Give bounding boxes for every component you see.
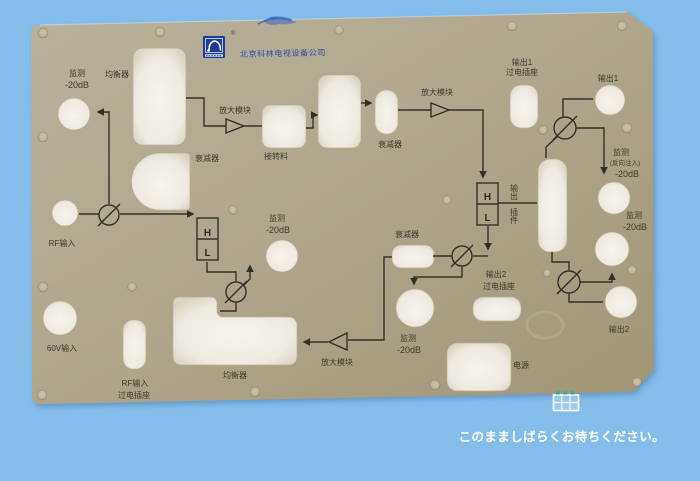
cutout-equalizer-top <box>133 48 186 145</box>
label-amp-module-bottom: 放大模块 <box>321 357 353 367</box>
label-rf-in: RF输入 <box>49 238 76 248</box>
cutout-rf-socket <box>123 320 146 369</box>
label-monitor-bottom-db: -20dB <box>397 345 421 355</box>
label-out1: 输出1 <box>598 73 619 83</box>
label-monitor-tl-db: -20dB <box>65 80 89 90</box>
cutout-rf-in <box>52 200 78 226</box>
label-power: 电源 <box>513 360 529 370</box>
label-monitor-bottom: 监测 <box>400 333 416 343</box>
cutout-attenuator-small <box>375 90 398 134</box>
cutout-connector <box>262 105 306 148</box>
cutout-output-plugin <box>538 159 567 252</box>
label-output-plugin1: 输出 <box>510 183 519 201</box>
cutout-module-top <box>318 75 361 148</box>
cutout-60v-in <box>43 301 77 335</box>
label-attenuator-top: 衰减器 <box>195 153 219 163</box>
hl-right-h: H <box>484 192 491 203</box>
arch-dot <box>207 49 210 52</box>
cutout-monitor-bottom <box>396 289 434 327</box>
label-out2-socket2: 过电插座 <box>483 281 515 291</box>
label-equalizer-top: 均衡器 <box>105 69 129 79</box>
label-monitor-rev: 监测 <box>613 147 629 157</box>
label-out1-socket2: 过电插座 <box>506 67 538 77</box>
cutout-power <box>447 343 511 391</box>
cutout-monitor-tl <box>58 98 90 130</box>
label-amp-module-right: 放大模块 <box>421 87 453 97</box>
hl-left-l: L <box>204 248 210 259</box>
cutout-out1-socket <box>510 85 538 128</box>
company-name: 北京科林电视设备公司 <box>240 47 326 59</box>
label-out2: 输出2 <box>609 324 630 334</box>
hl-left-h: H <box>204 228 211 239</box>
label-monitor-mid-db: -20dB <box>266 225 290 235</box>
label-monitor-rev-db: -20dB <box>615 169 639 179</box>
label-out1-socket: 输出1 <box>512 57 533 67</box>
label-amp-module-left: 放大模块 <box>219 105 251 115</box>
label-output-plugin2: 插件 <box>510 207 519 225</box>
label-out2-socket: 输出2 <box>486 269 507 279</box>
label-connector: 接转料 <box>264 151 288 161</box>
trademark-mark: ® <box>231 30 236 37</box>
table-placeholder-icon <box>554 392 579 411</box>
label-rf-socket2: 过电插座 <box>118 390 150 400</box>
label-monitor-rev2: (反向注入) <box>610 158 640 167</box>
label-monitor-r2: 监测 <box>626 210 642 220</box>
panel-photo: H L H L 监测 -20dB 均衡器 放大模块 接转料 衰减器 监测 -20… <box>31 12 654 404</box>
cutout-out2 <box>605 286 637 318</box>
label-monitor-tl: 监测 <box>69 68 85 78</box>
wait-message: このまましばらくお待ちください。 <box>459 429 665 444</box>
cutout-out1 <box>595 85 625 115</box>
cutout-monitor-right2 <box>595 232 629 266</box>
label-60v-in: 60V输入 <box>47 343 77 353</box>
cutout-monitor-reverse <box>598 182 630 214</box>
label-attenuator-mid: 衰减器 <box>395 229 419 239</box>
cutout-attenuator-mid <box>392 245 434 268</box>
hl-right-l: L <box>484 213 490 224</box>
label-equalizer-bottom: 均衡器 <box>223 370 247 380</box>
label-monitor-mid: 监测 <box>269 213 285 223</box>
label-monitor-r2-db: -20dB <box>623 222 647 232</box>
cutout-out2-socket <box>473 297 521 321</box>
label-attenuator-small: 衰减器 <box>378 139 402 149</box>
label-rf-socket: RF输入 <box>122 378 149 388</box>
cutout-attenuator-top <box>132 153 191 210</box>
photo-canvas: H L H L 监测 -20dB 均衡器 放大模块 接转料 衰减器 监测 -20… <box>0 0 700 481</box>
cutout-monitor-mid <box>266 240 298 272</box>
